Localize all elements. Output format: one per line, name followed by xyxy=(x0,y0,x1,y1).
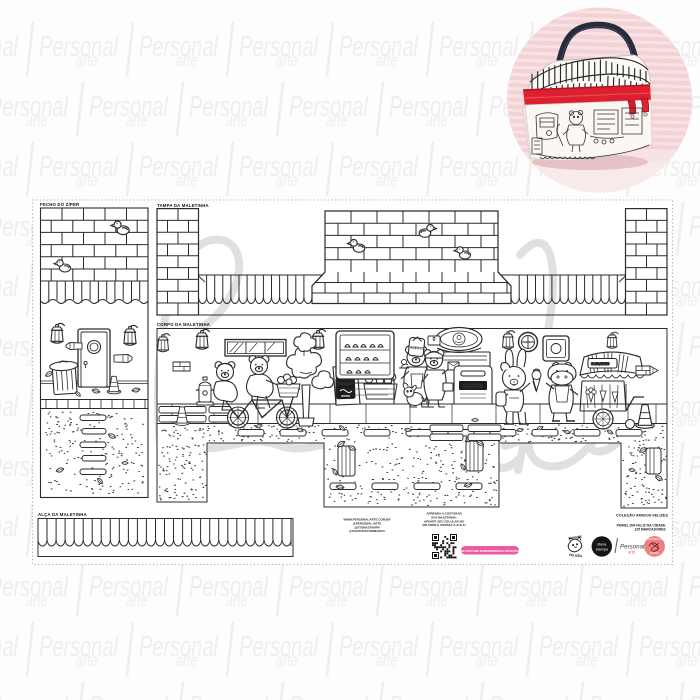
svg-text:125 MARCADORES: 125 MARCADORES xyxy=(634,528,666,532)
svg-text:Personal: Personal xyxy=(689,210,700,243)
svg-text:stampa: stampa xyxy=(596,548,609,552)
svg-text:Personal: Personal xyxy=(489,690,569,700)
svg-text:arte: arte xyxy=(676,292,698,312)
svg-text:arte: arte xyxy=(176,172,198,192)
svg-text:arte: arte xyxy=(426,592,448,612)
svg-text:Personal: Personal xyxy=(0,150,19,183)
svg-text:arte: arte xyxy=(76,52,98,72)
svg-text:Personal: Personal xyxy=(689,570,700,603)
svg-text:Personal: Personal xyxy=(0,390,19,423)
svg-text:QR CODE E ASSISTA À AULA!: QR CODE E ASSISTA À AULA! xyxy=(422,522,465,527)
svg-text:COLEÇÃO AMIGOS FELIZES: COLEÇÃO AMIGOS FELIZES xyxy=(616,513,668,518)
svg-text:TAMPA DA MALETINHA: TAMPA DA MALETINHA xyxy=(157,203,209,208)
svg-text:arte: arte xyxy=(326,592,348,612)
svg-text:Personal: Personal xyxy=(289,690,369,700)
svg-text:arte: arte xyxy=(376,652,398,672)
svg-text:arte: arte xyxy=(676,532,698,552)
svg-text:arte: arte xyxy=(326,112,348,132)
svg-text:arte: arte xyxy=(126,592,148,612)
svg-text:SORVETES: SORVETES xyxy=(591,362,610,366)
svg-text:arte: arte xyxy=(26,112,48,132)
svg-text:arte: arte xyxy=(26,592,48,612)
svg-text:Personal: Personal xyxy=(389,690,469,700)
svg-text:Personal: Personal xyxy=(689,330,700,363)
svg-text:Personal: Personal xyxy=(0,30,19,63)
svg-text:Personal: Personal xyxy=(0,630,19,663)
svg-text:Personal: Personal xyxy=(0,270,19,303)
svg-text:@COSTURACOMMARCA: @COSTURACOMMARCA xyxy=(349,529,386,533)
svg-text:FECHO DO ZÍPER: FECHO DO ZÍPER xyxy=(40,202,80,207)
svg-text:WWW.YOUTUBE.COM/PERSONALARTEOF: WWW.YOUTUBE.COM/PERSONALARTEOFICIAL xyxy=(455,549,524,553)
svg-text:CORPO DA MALETINHA: CORPO DA MALETINHA xyxy=(157,322,210,327)
svg-text:MARÇA: MARÇA xyxy=(650,552,659,555)
svg-text:arte: arte xyxy=(126,112,148,132)
svg-text:Personal: Personal xyxy=(0,510,19,543)
svg-text:arte: arte xyxy=(376,52,398,72)
svg-text:Personal: Personal xyxy=(89,690,169,700)
svg-text:arte: arte xyxy=(176,652,198,672)
svg-text:arte: arte xyxy=(676,652,698,672)
svg-text:arte: arte xyxy=(576,652,598,672)
svg-text:ALÇA DA MALETINHA: ALÇA DA MALETINHA xyxy=(38,512,87,517)
svg-text:arte: arte xyxy=(276,172,298,192)
svg-text:Personal: Personal xyxy=(0,690,69,700)
svg-text:Personal: Personal xyxy=(689,690,700,700)
svg-text:arte: arte xyxy=(276,52,298,72)
svg-text:arte: arte xyxy=(526,592,548,612)
svg-text:arte: arte xyxy=(276,652,298,672)
svg-text:arte: arte xyxy=(176,52,198,72)
svg-text:arte: arte xyxy=(476,52,498,72)
svg-text:arte: arte xyxy=(628,550,636,555)
svg-text:arte: arte xyxy=(476,172,498,192)
svg-text:CARTAS: CARTAS xyxy=(463,384,483,390)
svg-text:arte: arte xyxy=(626,592,648,612)
svg-text:arte: arte xyxy=(376,172,398,192)
svg-text:COSTURA COM: COSTURA COM xyxy=(646,538,664,541)
svg-text:arte: arte xyxy=(226,592,248,612)
svg-text:arte: arte xyxy=(76,172,98,192)
svg-text:Personal: Personal xyxy=(689,450,700,483)
svg-text:stona: stona xyxy=(597,543,607,547)
svg-text:arte: arte xyxy=(676,172,698,192)
svg-text:arte: arte xyxy=(76,652,98,672)
svg-text:Personal: Personal xyxy=(189,690,269,700)
svg-text:arte: arte xyxy=(226,112,248,132)
svg-text:Personal: Personal xyxy=(589,690,669,700)
svg-text:arte: arte xyxy=(476,652,498,672)
svg-text:arte: arte xyxy=(426,112,448,132)
svg-text:arte: arte xyxy=(676,412,698,432)
